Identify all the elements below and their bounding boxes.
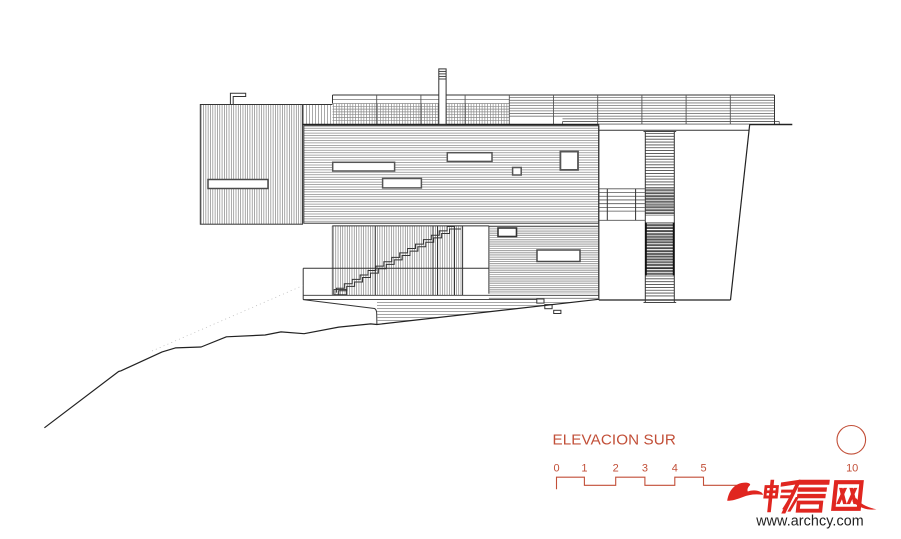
svg-text:3: 3: [642, 463, 648, 475]
svg-text:ELEVACION SUR: ELEVACION SUR: [553, 432, 676, 449]
svg-text:5: 5: [700, 463, 706, 475]
svg-text:2: 2: [613, 463, 619, 475]
svg-text:1: 1: [581, 463, 587, 475]
svg-text:10: 10: [846, 463, 858, 475]
svg-text:www.archcy.com: www.archcy.com: [755, 514, 864, 530]
svg-text:0: 0: [553, 463, 559, 475]
svg-text:4: 4: [672, 463, 678, 475]
